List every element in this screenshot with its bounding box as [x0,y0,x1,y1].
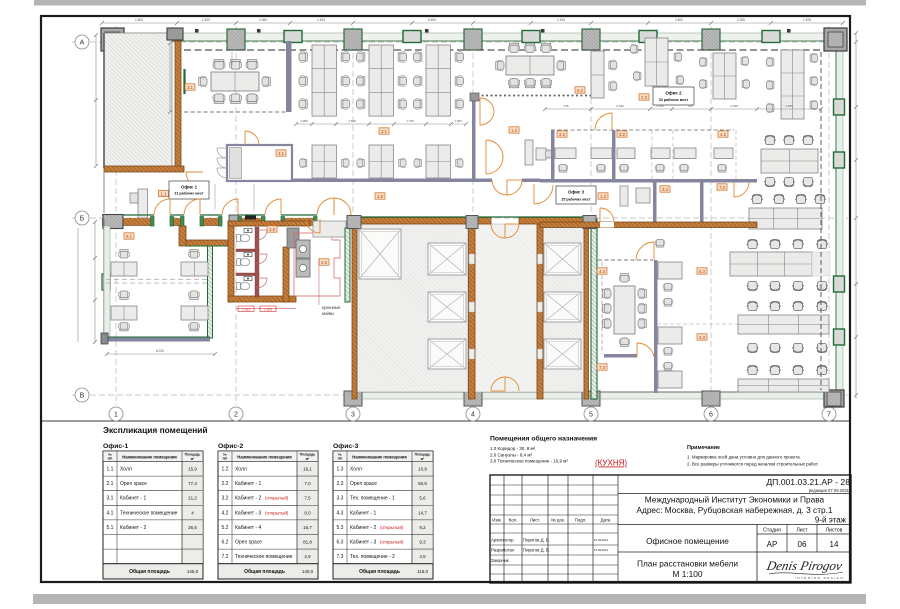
svg-text:2,9: 2,9 [304,554,311,559]
svg-text:3: 3 [351,412,355,419]
svg-text:Наименование помещения: Наименование помещения [352,455,407,460]
svg-text:4: 4 [471,412,475,419]
svg-text:1.530: 1.530 [317,18,325,22]
svg-text:Кабинет - 1: Кабинет - 1 [235,481,261,487]
svg-text:2.2: 2.2 [559,132,565,137]
svg-text:INTERIOR DESIGN: INTERIOR DESIGN [795,576,844,580]
svg-text:77,4: 77,4 [188,481,197,486]
svg-text:745: 745 [563,104,568,108]
svg-text:ДП.001.03.21.АР - 28: ДП.001.03.21.АР - 28 [766,477,850,487]
svg-text:Лист: Лист [796,528,808,534]
svg-text:1.000: 1.000 [454,119,462,123]
svg-text:1.1: 1.1 [107,467,114,473]
svg-text:4.1: 4.1 [107,510,114,516]
svg-text:5.2: 5.2 [222,525,229,531]
svg-text:8,0: 8,0 [304,510,311,515]
svg-text:5,6: 5,6 [419,496,426,501]
svg-text:1.525: 1.525 [785,104,793,108]
svg-text:7: 7 [827,412,831,419]
svg-text:07.09.2021: 07.09.2021 [594,538,608,542]
svg-text:Кабинет - 4: Кабинет - 4 [235,525,261,531]
svg-text:115,0: 115,0 [417,569,428,574]
svg-text:Тех. помещение - 2: Тех. помещение - 2 [350,554,395,560]
svg-text:Холл: Холл [235,467,247,473]
svg-text:9,2: 9,2 [419,525,426,530]
svg-text:6.010: 6.010 [156,349,164,353]
svg-text:7.3: 7.3 [337,554,344,560]
svg-text:16,7: 16,7 [303,525,312,530]
svg-text:2.0 Санузлы - 8,4 м²: 2.0 Санузлы - 8,4 м² [490,452,533,457]
svg-text:редакция 07.09.2021: редакция 07.09.2021 [809,488,850,493]
svg-text:3.2: 3.2 [222,496,229,502]
svg-text:1.6: 1.6 [377,194,383,199]
svg-text:1.800: 1.800 [135,18,143,22]
svg-text:Офис-1: Офис-1 [103,443,128,450]
svg-text:4.2: 4.2 [222,510,229,516]
svg-text:Кабинет - 3: Кабинет - 3 [350,540,376,546]
svg-text:2.800: 2.800 [675,18,683,22]
svg-text:Denis Pirogov: Denis Pirogov [765,558,844,573]
svg-text:31 рабочих мест: 31 рабочих мест [174,192,203,196]
svg-text:Офисное помещение: Офисное помещение [646,536,729,546]
svg-text:5.1: 5.1 [107,525,114,531]
svg-text:1.080: 1.080 [259,18,267,22]
svg-text:Open space: Open space [350,481,377,487]
svg-text:1.1: 1.1 [161,191,167,196]
svg-text:Кабинет - 1: Кабинет - 1 [350,510,376,516]
svg-text:3.1: 3.1 [107,496,114,502]
svg-text:Наименование помещения: Наименование помещения [122,455,177,460]
svg-text:Б: Б [80,216,85,223]
svg-text:15,9: 15,9 [188,467,197,472]
svg-text:Помещения общего назначения: Помещения общего назначения [490,435,597,443]
svg-text:Кабинет - 3: Кабинет - 3 [235,510,261,516]
svg-text:Экспликация помещений: Экспликация помещений [103,425,208,435]
svg-text:Open space: Open space [120,481,147,487]
svg-text:АР: АР [767,540,778,549]
svg-text:5.3: 5.3 [337,525,344,531]
svg-text:Листов: Листов [826,528,843,534]
svg-text:План расстановки мебели: План расстановки мебели [637,559,738,569]
svg-text:Дата: Дата [601,518,611,523]
svg-text:Офис 1: Офис 1 [181,185,198,190]
svg-text:Наименование помещения: Наименование помещения [237,455,292,460]
svg-text:Изм.: Изм. [492,518,501,523]
svg-text:Кабинет - 2: Кабинет - 2 [235,496,261,502]
svg-text:07.09.2021: 07.09.2021 [594,548,608,552]
svg-text:Общая площадь: Общая площадь [129,568,170,575]
svg-text:Кабинет - 2: Кабинет - 2 [350,525,376,531]
svg-text:81,8: 81,8 [303,540,312,545]
svg-text:Техническое помещение: Техническое помещение [235,554,293,560]
svg-text:1.2: 1.2 [511,128,517,133]
svg-text:5.3: 5.3 [699,269,705,274]
svg-text:п/п: п/п [223,457,228,461]
svg-text:Кабинет - 2: Кабинет - 2 [120,525,146,531]
svg-text:(открытый): (открытый) [380,524,404,530]
svg-text:М 1:100: М 1:100 [673,569,703,579]
svg-text:Разработал: Разработал [491,548,515,553]
svg-text:3.3: 3.3 [662,187,668,192]
svg-text:14: 14 [830,540,839,549]
svg-text:5.605: 5.605 [428,18,436,22]
svg-text:6: 6 [709,412,713,419]
svg-text:7,5: 7,5 [304,496,311,501]
svg-text:745: 745 [687,104,692,108]
svg-text:25 рабочих мест: 25 рабочих мест [561,198,590,202]
svg-text:Пирогов Д. В.: Пирогов Д. В. [523,538,550,543]
svg-text:Общая площадь: Общая площадь [244,568,285,575]
svg-text:1.0 Коридор - 30, 8 м².: 1.0 Коридор - 30, 8 м². [490,446,536,451]
svg-text:4.2: 4.2 [720,132,726,137]
svg-text:21,2: 21,2 [188,496,197,501]
svg-text:Техническое помещение: Техническое помещение [120,510,178,516]
svg-text:Open space: Open space [235,540,262,546]
svg-text:1.760: 1.760 [406,119,414,123]
svg-text:5: 5 [589,412,593,419]
svg-text:2.3: 2.3 [641,95,647,100]
svg-text:Тех. помещение - 1: Тех. помещение - 1 [350,496,395,502]
svg-text:п/п: п/п [338,457,343,461]
svg-text:Кол.: Кол. [509,518,518,523]
svg-text:Офис 2: Офис 2 [665,91,682,96]
svg-text:Адрес: Москва, Рубцовская набе: Адрес: Москва, Рубцовская набережная, д.… [636,505,832,515]
svg-text:5.2: 5.2 [577,88,583,93]
svg-text:5.1: 5.1 [126,234,132,239]
svg-text:2.330: 2.330 [616,104,624,108]
svg-text:32 рабочих мест: 32 рабочих мест [659,98,688,102]
svg-text:4.3: 4.3 [599,269,605,274]
svg-text:1.530: 1.530 [348,119,356,123]
svg-text:Офис 3: Офис 3 [568,190,585,195]
svg-text:1.3: 1.3 [337,467,344,473]
svg-text:(открытый): (открытый) [265,509,289,515]
svg-text:Холл: Холл [120,467,132,473]
svg-text:2.035: 2.035 [730,104,738,108]
svg-text:мойки: мойки [322,311,334,316]
svg-text:2.2: 2.2 [222,481,229,487]
svg-text:Примечание: Примечание [687,445,720,451]
svg-text:В: В [80,393,85,400]
svg-text:1.520: 1.520 [202,18,210,22]
svg-text:140,0: 140,0 [302,569,314,574]
svg-text:2: 2 [234,412,238,419]
svg-text:Подл.: Подл. [575,518,587,523]
svg-text:1.525: 1.525 [803,18,811,22]
svg-text:Холл: Холл [350,467,362,473]
svg-text:2.280: 2.280 [737,18,745,22]
svg-text:4.1: 4.1 [278,151,284,156]
svg-text:(КУХНЯ): (КУХНЯ) [595,459,627,468]
svg-text:2.1: 2.1 [107,481,114,487]
svg-text:4.3: 4.3 [337,510,344,516]
svg-text:3.1: 3.1 [187,85,193,90]
svg-text:1.3: 1.3 [600,194,606,199]
svg-text:10,9: 10,9 [418,467,427,472]
svg-text:9,3: 9,3 [419,540,426,545]
svg-text:7.2: 7.2 [719,185,725,190]
svg-text:Общая площадь: Общая площадь [359,568,400,575]
svg-text:2.1: 2.1 [381,129,387,134]
svg-text:4,5: 4,5 [419,554,426,559]
svg-text:16,1: 16,1 [303,467,312,472]
svg-text:(открытый): (открытый) [265,495,289,501]
svg-text:1. Маркировка осей дана условн: 1. Маркировка осей дана условно для данн… [687,455,801,460]
svg-text:1: 1 [114,412,118,419]
svg-text:7.3: 7.3 [599,365,605,370]
svg-text:2.0: 2.0 [269,227,275,232]
svg-text:3.2: 3.2 [619,132,625,137]
svg-text:6.3: 6.3 [699,335,705,340]
svg-text:№ док.: № док. [551,518,565,523]
svg-text:2.105: 2.105 [656,104,664,108]
svg-text:6.2: 6.2 [222,540,229,546]
svg-text:14,7: 14,7 [418,510,427,515]
svg-text:3.3: 3.3 [337,496,344,502]
svg-text:Офис-3: Офис-3 [333,443,358,450]
svg-text:1.2: 1.2 [222,467,229,473]
svg-text:(открытый): (открытый) [380,539,404,545]
svg-text:1.555: 1.555 [242,307,250,311]
svg-text:145,0: 145,0 [187,569,199,574]
svg-text:кухонные: кухонные [322,305,341,310]
svg-text:Пирогов Д. В.: Пирогов Д. В. [523,548,550,553]
svg-text:Архитектор: Архитектор [491,538,514,543]
svg-text:26,5: 26,5 [188,525,197,530]
svg-text:п/п: п/п [108,457,113,461]
svg-text:3.0: 3.0 [321,260,327,265]
svg-text:2. Все размеры уточняются пере: 2. Все размеры уточняются перед началом … [687,462,819,467]
svg-text:А: А [80,40,85,47]
svg-text:1.080: 1.080 [300,119,308,123]
svg-text:2.3: 2.3 [337,481,344,487]
svg-text:6.3: 6.3 [337,540,344,546]
svg-text:2.105: 2.105 [557,18,565,22]
svg-text:7.2: 7.2 [222,554,229,560]
svg-text:Офис-2: Офис-2 [218,443,243,450]
svg-text:Кабинет - 1: Кабинет - 1 [120,496,146,502]
svg-text:1.555: 1.555 [264,307,272,311]
svg-text:06: 06 [798,540,807,549]
svg-text:60,8: 60,8 [418,481,427,486]
svg-text:Лист.: Лист. [530,518,540,523]
svg-text:9-й этаж: 9-й этаж [815,516,847,525]
svg-text:7,0: 7,0 [304,481,311,486]
svg-text:Международный Институт Экономи: Международный Институт Экономики и Права [645,495,825,505]
svg-text:Заказчик: Заказчик [491,558,509,563]
svg-text:Стадия: Стадия [763,528,781,534]
svg-text:3.0 Техническое помещение - 10: 3.0 Техническое помещение - 10,9 м² [490,459,568,464]
